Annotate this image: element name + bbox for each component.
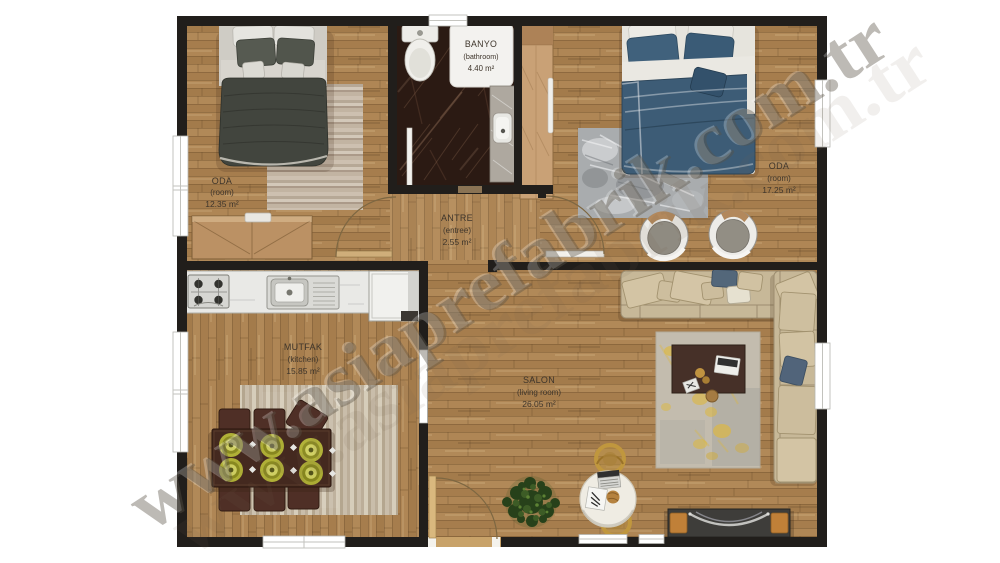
svg-text:12.35 m²: 12.35 m² <box>205 199 239 209</box>
svg-text:ODA: ODA <box>212 176 232 186</box>
svg-text:(entree): (entree) <box>443 226 471 235</box>
svg-text:SALON: SALON <box>523 375 555 385</box>
svg-text:4.40 m²: 4.40 m² <box>468 64 495 73</box>
svg-text:26.05 m²: 26.05 m² <box>522 399 556 409</box>
svg-text:(room): (room) <box>210 188 234 197</box>
svg-text:BANYO: BANYO <box>465 39 497 49</box>
svg-text:ANTRE: ANTRE <box>441 213 473 223</box>
svg-text:2.55 m²: 2.55 m² <box>443 237 472 247</box>
svg-text:(bathroom): (bathroom) <box>463 52 498 61</box>
svg-text:(living room): (living room) <box>517 388 561 397</box>
